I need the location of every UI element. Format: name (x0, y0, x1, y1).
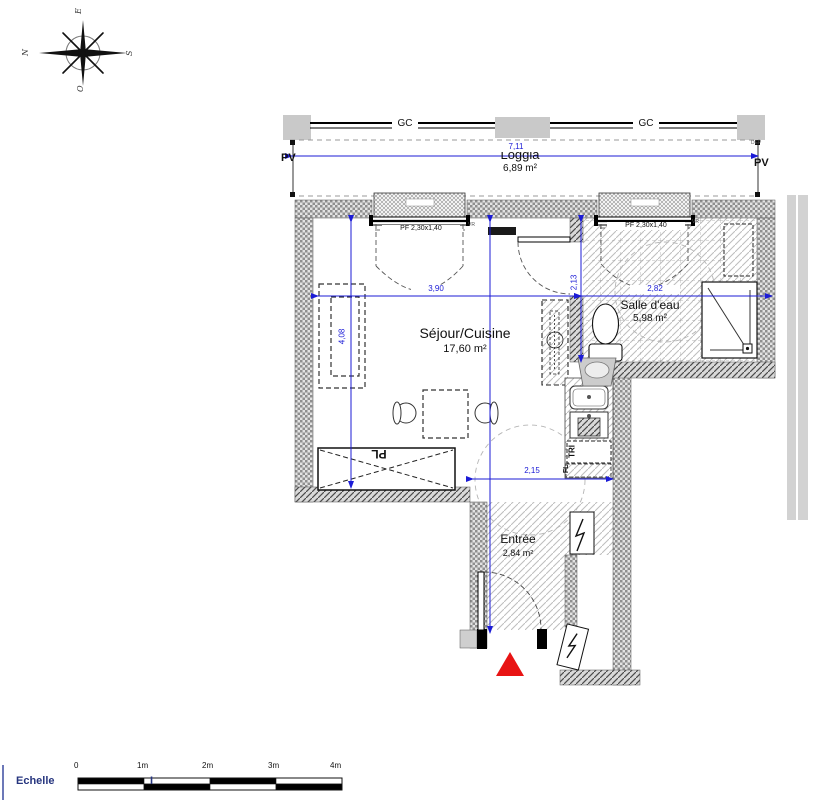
vr-label-salle-eau: VR (692, 220, 699, 226)
dim-kitchen-width: 2,15 (505, 467, 559, 476)
adjacent-structure (787, 195, 808, 520)
salle-eau-area: 5,98 m² (600, 313, 700, 324)
compass-s: S (125, 50, 134, 56)
vr-label-sejour: VR (468, 223, 475, 229)
hob (570, 412, 608, 438)
scale-tick-0: 0 (74, 762, 78, 771)
closet-pl-label: PL (367, 447, 391, 460)
rail-label-gc-right: GC (633, 118, 659, 129)
sink (570, 386, 608, 409)
compass-o: O (76, 85, 85, 92)
compass-rose: N E S O (21, 8, 134, 92)
shower (702, 282, 757, 358)
compass-n: N (21, 48, 30, 57)
washbasin (578, 358, 616, 386)
technical-closet-door (557, 624, 589, 670)
window-label-sejour: PF 2,30x1,40 (382, 225, 460, 233)
scale-tick-4m: 4m (330, 762, 341, 771)
chair (393, 402, 416, 424)
fl-label: FL (563, 458, 571, 480)
dim-sejour-height: 4,08 (339, 314, 348, 358)
entrance-marker-triangle (496, 652, 524, 676)
scale-tick-3m: 3m (268, 762, 279, 771)
floor-plan-page: N E S O (0, 0, 839, 800)
compass-e: E (74, 8, 83, 15)
sejour-area: 17,60 m² (385, 343, 545, 355)
door-swings-window-sejour (376, 224, 463, 291)
scale-bar (78, 778, 342, 790)
scale-separator: I (150, 775, 153, 787)
sejour-name: Séjour/Cuisine (385, 326, 545, 341)
scale-tick-1m: 1m (137, 762, 148, 771)
chair (475, 402, 498, 424)
post-label-pv-right: PV (754, 157, 769, 169)
rail-label-gc-left: GC (392, 118, 418, 129)
salle-eau-name: Salle d'eau (600, 299, 700, 312)
dim-salle-eau-width: 2,82 (630, 285, 680, 294)
dep-label: DEP (751, 141, 761, 147)
entree-name: Entrée (483, 533, 553, 546)
electrical-panel (570, 512, 594, 554)
scale-tick-2m: 2m (202, 762, 213, 771)
loggia-area: 6,89 m² (470, 163, 570, 174)
dining-table (393, 390, 498, 438)
dim-loggia-width: 7,11 (481, 143, 551, 152)
scale-label: Echelle (16, 775, 55, 787)
bathroom-cabinet (724, 224, 753, 276)
floor-plan-drawing: N E S O (0, 0, 839, 800)
entree-area: 2,84 m² (483, 549, 553, 559)
window-label-salle-eau: PF 2,30x1,40 (607, 222, 685, 230)
post-label-pv-left: PV (281, 152, 296, 164)
dim-salle-eau-height: 2,13 (571, 260, 580, 304)
kitchen-tall-unit (542, 300, 568, 385)
pv-post-left (290, 140, 295, 197)
salle-eau-door (488, 227, 570, 294)
dim-sejour-width: 3,90 (411, 285, 461, 294)
